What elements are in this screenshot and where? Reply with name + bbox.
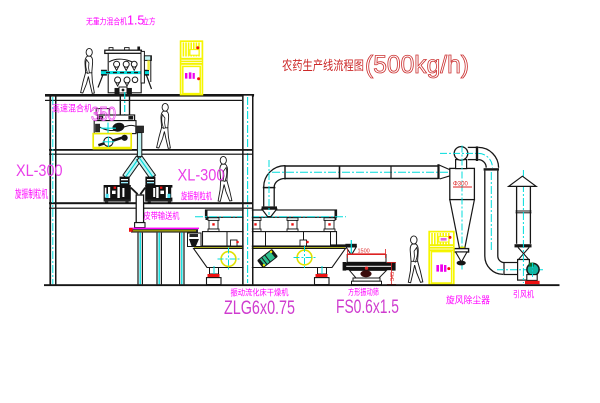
svg-text:Φ300: Φ300 [453,181,468,187]
svg-text:振动流化床干燥机: 振动流化床干燥机 [231,288,289,298]
svg-text:350: 350 [91,105,116,126]
svg-text:农药生产线流程图: 农药生产线流程图 [282,58,364,73]
svg-text:引风机: 引风机 [513,289,534,300]
svg-text:345: 345 [390,272,396,281]
svg-text:高速混合机: 高速混合机 [52,103,92,114]
svg-text:1500: 1500 [358,249,370,255]
svg-text:旋振制粒机: 旋振制粒机 [181,191,212,203]
svg-text:(500kg/h): (500kg/h) [365,51,469,79]
svg-text:XL-300: XL-300 [178,166,225,185]
svg-text:立方: 立方 [143,17,156,27]
svg-text:旋风除尘器: 旋风除尘器 [446,295,490,307]
svg-text:XL-300: XL-300 [16,161,63,180]
svg-text:方形振动筛: 方形振动筛 [348,287,379,297]
svg-text:旋振制粒机: 旋振制粒机 [15,187,48,201]
svg-text:FS0.6x1.5: FS0.6x1.5 [336,297,399,318]
svg-text:无重力混合机: 无重力混合机 [86,17,127,27]
svg-text:皮带输送机: 皮带输送机 [144,210,180,221]
svg-text:ZLG6x0.75: ZLG6x0.75 [224,298,295,319]
